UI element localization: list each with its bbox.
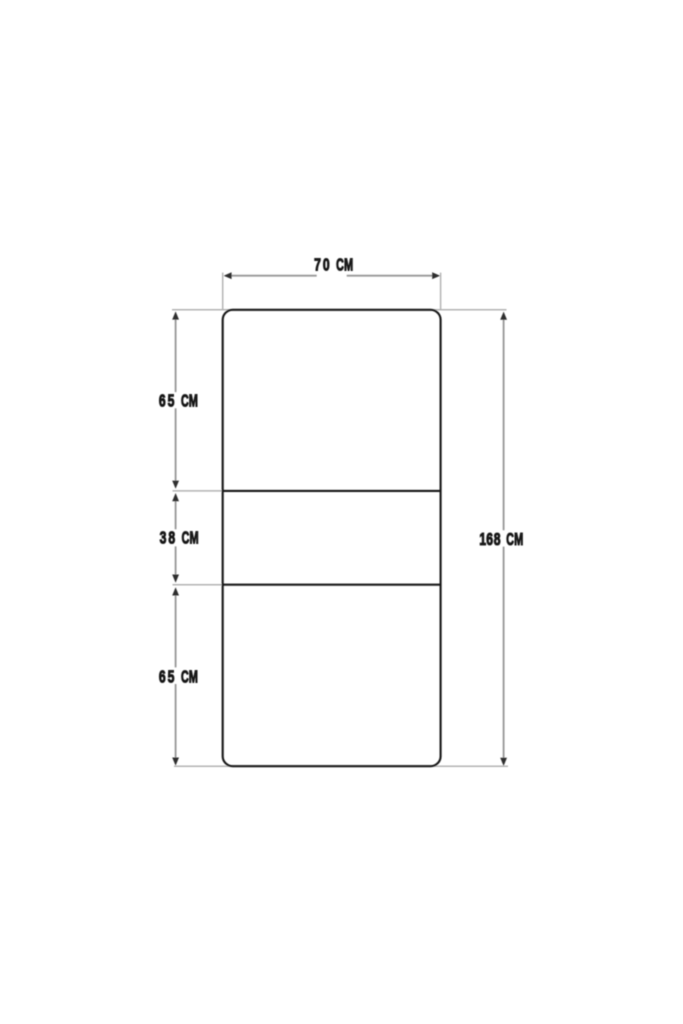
svg-text:3: 3 <box>160 528 167 548</box>
svg-text:M: M <box>514 531 523 550</box>
svg-text:6: 6 <box>159 668 166 688</box>
svg-text:8: 8 <box>494 530 501 550</box>
svg-text:6: 6 <box>486 530 493 550</box>
svg-text:0: 0 <box>323 255 330 275</box>
svg-text:M: M <box>189 529 198 548</box>
svg-text:C: C <box>181 668 189 687</box>
svg-text:C: C <box>506 530 514 549</box>
svg-text:1: 1 <box>479 530 486 550</box>
svg-text:5: 5 <box>168 391 175 411</box>
svg-text:M: M <box>189 668 198 687</box>
svg-text:C: C <box>336 256 344 275</box>
svg-text:8: 8 <box>168 528 175 548</box>
svg-text:5: 5 <box>168 668 175 688</box>
svg-text:M: M <box>344 256 353 275</box>
svg-text:7: 7 <box>314 255 321 275</box>
svg-text:M: M <box>189 392 198 411</box>
svg-text:C: C <box>181 392 189 411</box>
svg-text:6: 6 <box>159 391 166 411</box>
svg-text:C: C <box>182 529 190 548</box>
